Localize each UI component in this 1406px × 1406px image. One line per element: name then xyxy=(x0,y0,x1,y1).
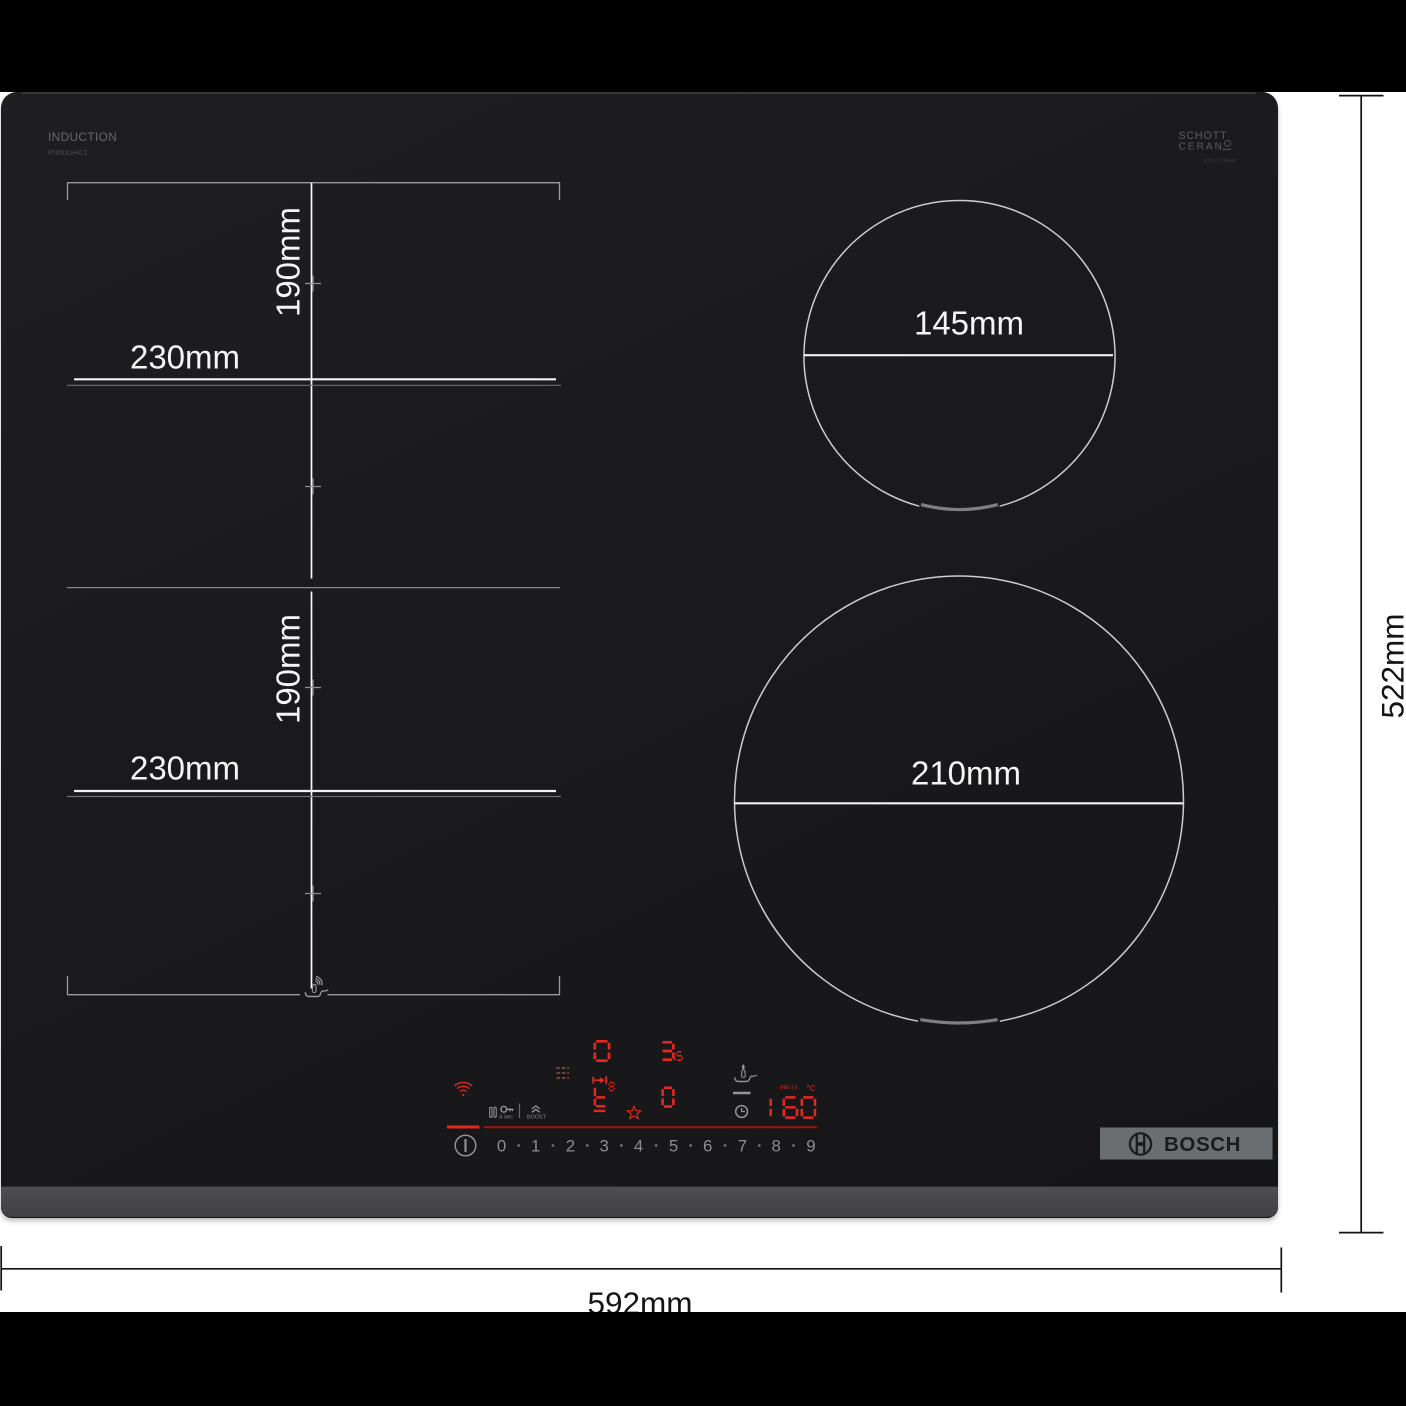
svg-text:2: 2 xyxy=(566,1137,575,1156)
svg-text:6: 6 xyxy=(703,1137,712,1156)
svg-text:9001778564: 9001778564 xyxy=(1203,159,1235,165)
svg-text:min | s: min | s xyxy=(780,1085,798,1091)
svg-text:190mm: 190mm xyxy=(270,614,307,724)
svg-text:190mm: 190mm xyxy=(270,207,307,317)
svg-text:3: 3 xyxy=(600,1137,609,1156)
svg-text:BOOST: BOOST xyxy=(527,1115,547,1121)
svg-text:145mm: 145mm xyxy=(914,305,1024,342)
svg-text:230mm: 230mm xyxy=(130,750,240,787)
svg-text:8: 8 xyxy=(772,1137,781,1156)
svg-text:230mm: 230mm xyxy=(130,339,240,376)
svg-text:5: 5 xyxy=(669,1137,678,1156)
svg-text:°C: °C xyxy=(807,1084,816,1093)
svg-text:1: 1 xyxy=(531,1137,540,1156)
svg-text:PIX631HC1: PIX631HC1 xyxy=(48,148,88,157)
svg-text:7: 7 xyxy=(738,1137,747,1156)
svg-text:4: 4 xyxy=(634,1137,643,1156)
svg-text:INDUCTION: INDUCTION xyxy=(48,130,117,144)
svg-text:522mm: 522mm xyxy=(1375,613,1406,718)
svg-text:0: 0 xyxy=(497,1137,506,1156)
svg-text:210mm: 210mm xyxy=(911,755,1021,792)
svg-text:SCHOTT: SCHOTT xyxy=(1179,130,1228,142)
svg-text:4 sec: 4 sec xyxy=(499,1115,513,1121)
svg-text:9: 9 xyxy=(806,1137,815,1156)
svg-text:BOSCH: BOSCH xyxy=(1164,1133,1241,1156)
svg-text:CERAN: CERAN xyxy=(1179,142,1225,153)
